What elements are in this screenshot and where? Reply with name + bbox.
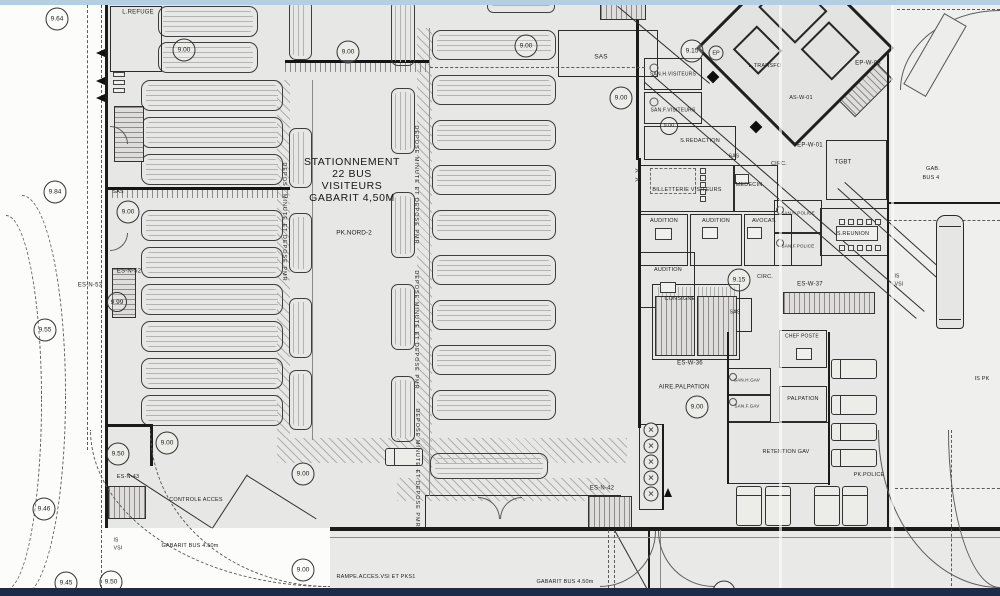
chair bbox=[113, 72, 125, 77]
bus-bay-vertical bbox=[289, 213, 312, 273]
elevation-marker: 9.00 bbox=[156, 432, 179, 455]
room-label: AIRE.PALPATION bbox=[659, 385, 710, 392]
chair bbox=[839, 245, 845, 251]
chair bbox=[866, 219, 872, 225]
room-label: S.REUNION bbox=[837, 231, 869, 237]
elevation-marker: 9.00 bbox=[610, 87, 633, 110]
room-label: AUDITION bbox=[650, 218, 678, 224]
chair bbox=[839, 219, 845, 225]
stair bbox=[655, 296, 695, 356]
turnstile: ✕ bbox=[644, 439, 659, 454]
room-label: GAB. bbox=[926, 166, 940, 172]
room-label: SAS bbox=[729, 154, 740, 160]
zone-title-line: VISITEURS bbox=[304, 180, 400, 192]
direction-arrow bbox=[96, 49, 105, 57]
room-label: CIRC. bbox=[757, 274, 773, 280]
desk bbox=[796, 348, 812, 360]
elevation-marker: 9.00 bbox=[337, 41, 360, 64]
room-label: ES-W-37 bbox=[797, 282, 823, 289]
room bbox=[779, 386, 827, 422]
zone-title-line: STATIONNEMENT bbox=[304, 156, 400, 168]
elevation-marker: 9.00 bbox=[686, 396, 709, 419]
plan-line bbox=[101, 5, 102, 588]
room-label: > bbox=[635, 168, 639, 176]
elevation-marker: 9.00 bbox=[117, 201, 140, 224]
bus-bay-vertical bbox=[289, 370, 312, 430]
room-label: SAS bbox=[594, 53, 608, 60]
room-label: SAS bbox=[112, 189, 124, 195]
desk bbox=[747, 227, 762, 239]
plan-line bbox=[312, 80, 313, 440]
room-label: IS PK bbox=[974, 376, 989, 382]
room-label: SAN.H.VISITEURS bbox=[650, 72, 696, 78]
chair bbox=[848, 219, 854, 225]
sheet-seam bbox=[891, 0, 894, 588]
room-label: SAN.F.VISITEURS bbox=[651, 108, 696, 114]
chair bbox=[875, 219, 881, 225]
bus-bay-vertical bbox=[289, 0, 312, 60]
elevation-marker: 9.99 bbox=[107, 292, 127, 312]
room-label: L.REFUGE bbox=[122, 10, 154, 17]
bus-bay bbox=[141, 321, 283, 352]
bus-bay bbox=[141, 247, 283, 278]
bus-bay bbox=[432, 300, 556, 330]
room-label: VSI bbox=[895, 282, 904, 288]
police-van bbox=[842, 486, 868, 526]
chair bbox=[700, 175, 706, 181]
police-van bbox=[765, 486, 791, 526]
top-edge-strip bbox=[0, 0, 1000, 5]
room-label: ES-N-53 bbox=[78, 283, 102, 290]
room-label: ES-N-52 bbox=[117, 269, 141, 276]
bus-bay bbox=[141, 210, 283, 241]
room-label: PALPATION bbox=[787, 396, 818, 402]
elevation-marker: 9.55 bbox=[34, 319, 57, 342]
turnstile: ✕ bbox=[644, 423, 659, 438]
plan-line bbox=[430, 67, 645, 68]
room-label: SAN.H.POLICE bbox=[781, 212, 815, 217]
desk bbox=[702, 227, 718, 239]
elevation-marker: 9.46 bbox=[33, 498, 56, 521]
floor-plan-canvas: ✕✕✕✕✕L.REFUGESASSAN.H.VISITEURSSAN.F.VIS… bbox=[0, 0, 1000, 596]
police-van bbox=[831, 449, 877, 467]
turnstile: ✕ bbox=[644, 455, 659, 470]
room-label: PK.POLICE bbox=[854, 472, 885, 478]
chair bbox=[700, 196, 706, 202]
elevation-marker: 9.00 bbox=[515, 35, 538, 58]
turnstile: ✕ bbox=[644, 471, 659, 486]
direction-arrow bbox=[96, 77, 105, 85]
bottom-edge-strip bbox=[0, 588, 1000, 596]
zone-code-label: PK.NORD-2 bbox=[336, 230, 371, 237]
bus-bay-vertical bbox=[391, 88, 415, 154]
chair bbox=[857, 219, 863, 225]
wall bbox=[889, 202, 1000, 204]
direction-arrow bbox=[96, 94, 105, 102]
bus-bay bbox=[432, 75, 556, 105]
bus-bay bbox=[158, 6, 258, 37]
police-van bbox=[831, 395, 877, 415]
chair bbox=[857, 245, 863, 251]
sanitary-fixture bbox=[650, 98, 659, 107]
crosswalk-band bbox=[107, 187, 290, 198]
elevation-marker: 9.50 bbox=[107, 443, 130, 466]
room-label: MEDECIN bbox=[736, 182, 763, 188]
direction-arrow bbox=[664, 488, 672, 497]
police-van bbox=[814, 486, 840, 526]
bus-bay bbox=[432, 390, 556, 420]
room-label: CONSIGNE bbox=[665, 296, 696, 302]
room-label: AS-W-01 bbox=[789, 95, 813, 101]
police-van bbox=[831, 423, 877, 441]
room-label: EP-W-01 bbox=[797, 143, 823, 150]
bus-bay-vertical bbox=[391, 376, 415, 442]
elevation-marker: 9.00 bbox=[292, 559, 315, 582]
elevation-marker: 9.64 bbox=[46, 8, 69, 31]
elevation-marker: 9.00 bbox=[173, 39, 196, 62]
room-label: L.TRANSFO bbox=[749, 63, 782, 69]
room-label: SAN.F.GAV bbox=[735, 405, 760, 410]
bus-bay bbox=[432, 165, 556, 195]
room-label: IS bbox=[113, 538, 118, 544]
stair bbox=[697, 296, 737, 356]
bus-bay-vertical bbox=[391, 284, 415, 350]
zone-title-line: 22 BUS bbox=[304, 168, 400, 180]
room-label: RETENTION GAV bbox=[762, 449, 809, 455]
room-label: IS bbox=[894, 274, 899, 280]
chair bbox=[848, 245, 854, 251]
elevation-marker: 9.15 bbox=[681, 40, 704, 63]
bus-bay bbox=[141, 358, 283, 389]
bus-bay bbox=[432, 120, 556, 150]
room-label: AUDITION bbox=[702, 218, 730, 224]
room bbox=[826, 140, 887, 200]
room-label: ES-N-42 bbox=[590, 486, 614, 493]
room-label: DEPOSE MINUTE ET DEPOSE PMR bbox=[413, 125, 419, 244]
bus-bay bbox=[432, 210, 556, 240]
stair bbox=[588, 496, 632, 531]
desk bbox=[655, 228, 672, 240]
bus-bay bbox=[432, 255, 556, 285]
room-label: AVOCAT. bbox=[752, 218, 776, 224]
room-label: SAS bbox=[730, 310, 741, 316]
chair bbox=[113, 88, 125, 93]
elevation-marker: 9.84 bbox=[44, 181, 67, 204]
bus-bay bbox=[141, 117, 283, 148]
room-label: SAN.H.GAV bbox=[734, 379, 760, 384]
wall bbox=[105, 424, 153, 427]
wall bbox=[662, 424, 664, 510]
wall bbox=[727, 332, 729, 484]
room-label: BUS 4 bbox=[923, 175, 940, 181]
elevation-marker: EP bbox=[709, 46, 724, 61]
plan-line bbox=[429, 28, 430, 496]
room-label: VSI bbox=[114, 546, 123, 552]
chair bbox=[875, 245, 881, 251]
elevation-marker: 9.00 bbox=[292, 463, 315, 486]
plan-line bbox=[87, 0, 88, 450]
elevation-marker: 9.15 bbox=[728, 269, 751, 292]
police-van bbox=[736, 486, 762, 526]
room-label: GABARIT BUS 4.50m bbox=[161, 543, 218, 549]
desk bbox=[660, 282, 676, 293]
bus-bay bbox=[141, 395, 283, 426]
room-label: CHEF POSTE bbox=[785, 334, 819, 340]
room-label: GABARIT BUS 4.50m bbox=[536, 579, 593, 585]
zone-title-line: GABARIT 4,50M bbox=[304, 192, 400, 204]
room-label: DEPOSE MINUTE ET DEPOSE PMR bbox=[281, 162, 287, 281]
room-label: TGBT bbox=[835, 160, 852, 167]
room-label: ES-W-36 bbox=[677, 361, 703, 368]
stair bbox=[783, 292, 875, 314]
sheet-seam bbox=[779, 0, 782, 588]
bus-vehicle bbox=[936, 215, 964, 329]
room bbox=[734, 165, 778, 212]
bus-bay bbox=[141, 80, 283, 111]
chair bbox=[700, 168, 706, 174]
bus-bay bbox=[432, 345, 556, 375]
turnstile: ✕ bbox=[644, 487, 659, 502]
wall bbox=[828, 332, 830, 485]
wall bbox=[636, 20, 639, 160]
room-label: RAMPE.ACCES.VSI ET PKS1 bbox=[336, 574, 415, 580]
room-label: SAN.F.POLICE bbox=[782, 245, 815, 250]
bus-bay bbox=[141, 154, 283, 185]
bus-bay-vertical bbox=[289, 298, 312, 358]
room-label: CONTROLE ACCES bbox=[169, 497, 223, 503]
room-label: EP-W-03 bbox=[855, 61, 881, 68]
room-label: DEPOSE MINUTE ET DEPOSE PMR bbox=[414, 408, 420, 527]
room-label: S.REDACTION bbox=[680, 138, 720, 144]
room-label: ES-N-43 bbox=[117, 474, 140, 480]
bus-bay bbox=[430, 453, 548, 479]
police-van bbox=[831, 359, 877, 379]
room-label: AUDITION bbox=[654, 267, 682, 273]
parking-zone-title: STATIONNEMENT 22 BUS VISITEURS GABARIT 4… bbox=[304, 156, 400, 204]
wing-room bbox=[801, 21, 860, 80]
bus-bay bbox=[141, 284, 283, 315]
elevation-marker: 9.00 bbox=[660, 117, 678, 135]
chair bbox=[113, 80, 125, 85]
room-label: DEPOSE MINUTE ET DEPOSE PMR bbox=[413, 270, 419, 389]
room-label: > bbox=[635, 177, 639, 185]
bus-bay-vertical bbox=[391, 0, 415, 66]
wall bbox=[638, 158, 641, 428]
chair bbox=[866, 245, 872, 251]
room-label: BILLETTERIE VISITEURS bbox=[652, 187, 721, 193]
